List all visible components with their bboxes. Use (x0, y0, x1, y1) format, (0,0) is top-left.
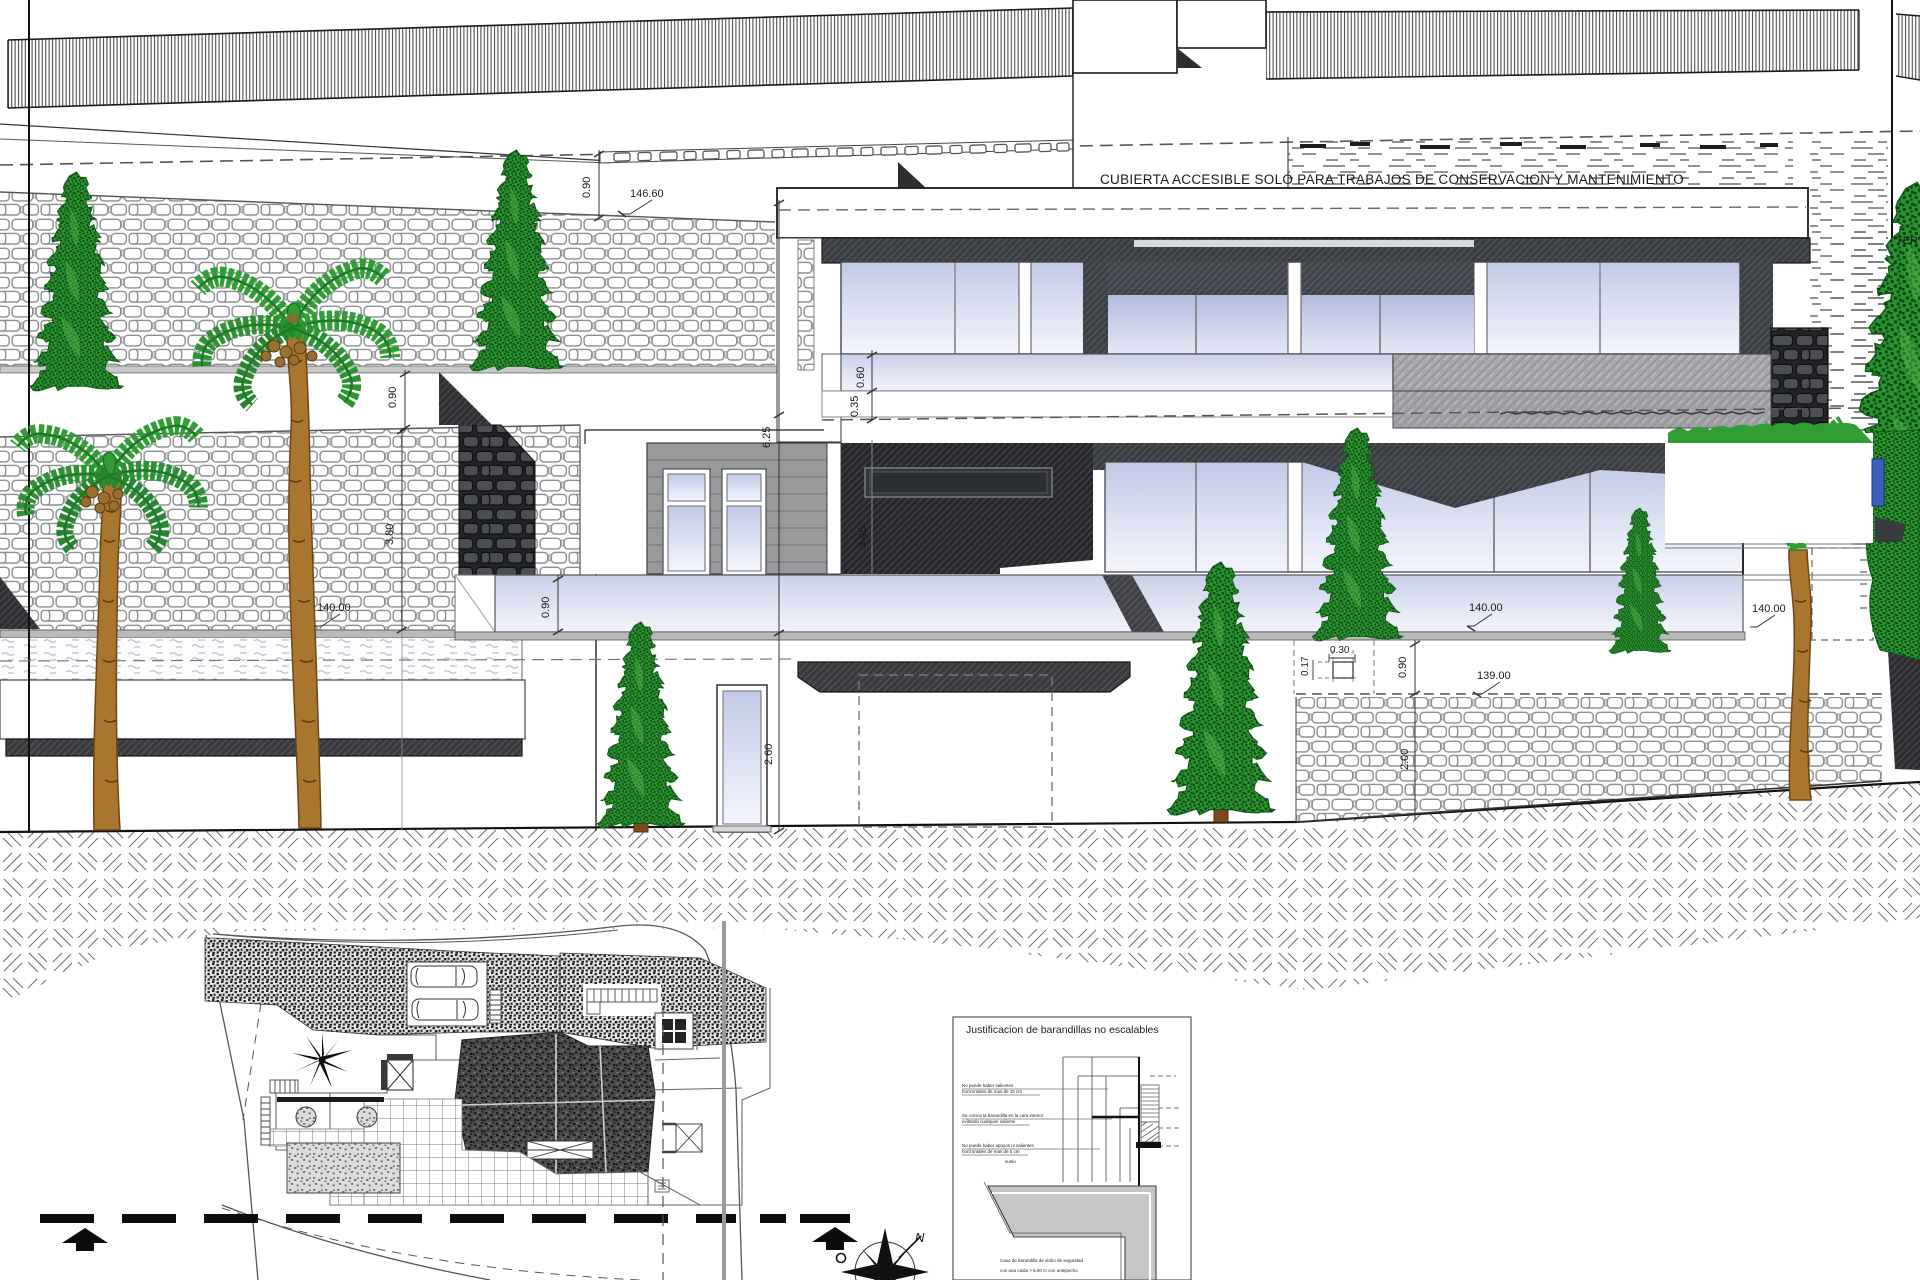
svg-text:evitando cualquier saliente: evitando cualquier saliente (962, 1119, 1016, 1124)
svg-text:Se coloca la barandilla en la: Se coloca la barandilla en la cara inter… (962, 1113, 1044, 1118)
svg-text:Caso de barandilla de vidrio d: Caso de barandilla de vidrio de segurida… (1000, 1258, 1084, 1263)
svg-text:0.35: 0.35 (849, 396, 861, 417)
svg-text:140.00: 140.00 (317, 602, 351, 614)
svg-text:horizontales de mas de 15 cm: horizontales de mas de 15 cm (962, 1089, 1022, 1094)
svg-text:No puede haber salientes: No puede haber salientes (962, 1083, 1014, 1088)
svg-text:suelo: suelo (1005, 1159, 1016, 1164)
svg-text:2.00: 2.00 (1399, 749, 1411, 770)
svg-text:No puede haber apoyos ni salie: No puede haber apoyos ni salientes (962, 1143, 1035, 1148)
svg-text:3.80: 3.80 (384, 524, 396, 545)
svg-text:0.90: 0.90 (540, 597, 552, 618)
svg-text:horizontales de mas de 5 cm: horizontales de mas de 5 cm (962, 1149, 1020, 1154)
svg-text:Justificacion de barandillas n: Justificacion de barandillas no escalabl… (966, 1024, 1159, 1036)
svg-text:TER: TER (1896, 235, 1918, 247)
svg-text:3.45: 3.45 (857, 527, 869, 548)
svg-text:0.60: 0.60 (855, 367, 867, 388)
svg-text:0.90: 0.90 (1397, 657, 1409, 678)
svg-text:139.00: 139.00 (1477, 670, 1511, 682)
svg-text:0.90: 0.90 (581, 177, 593, 198)
svg-text:N: N (915, 1230, 925, 1245)
svg-text:6.25: 6.25 (761, 427, 773, 448)
svg-text:146.60: 146.60 (630, 188, 664, 200)
svg-text:140.00: 140.00 (1752, 603, 1786, 615)
svg-text:CUBIERTA ACCESIBLE SOLO PARA T: CUBIERTA ACCESIBLE SOLO PARA TRABAJOS DE… (1100, 172, 1684, 187)
svg-text:con una caida > 6.00 m con ant: con una caida > 6.00 m con antepecho (1000, 1268, 1078, 1273)
svg-text:0.17: 0.17 (1300, 656, 1311, 676)
svg-text:140.00: 140.00 (1469, 602, 1503, 614)
svg-text:0.90: 0.90 (387, 387, 399, 408)
svg-text:2.60: 2.60 (763, 744, 775, 765)
